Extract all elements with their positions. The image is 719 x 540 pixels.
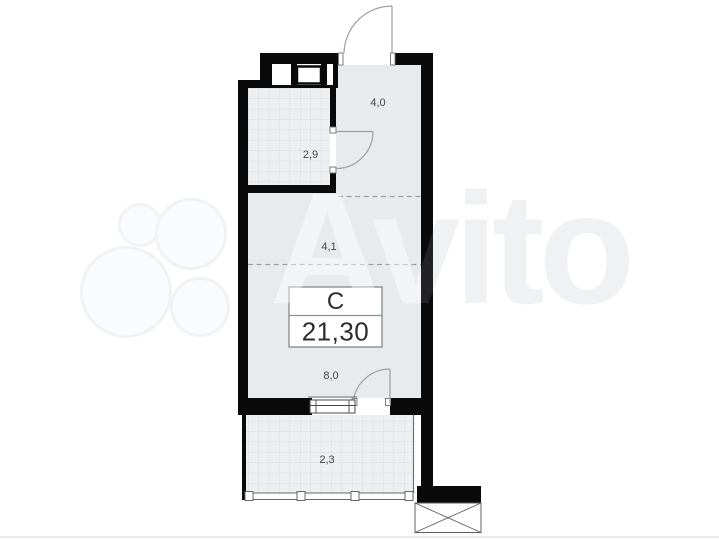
floorplan-image: Avito xyxy=(0,0,719,540)
vent-duct-symbol xyxy=(272,64,333,85)
window-symbol xyxy=(308,397,357,413)
apartment-type-label: С xyxy=(327,288,344,315)
shaft-crossed-box xyxy=(415,503,481,533)
wall-bottom-right-extension xyxy=(417,486,481,503)
page-separator-line xyxy=(0,536,719,538)
wall-bottom-left xyxy=(238,398,312,415)
apartment-info-box: С 21,30 xyxy=(289,287,382,347)
wall-right xyxy=(421,53,433,486)
wall-bathroom-right-lower xyxy=(330,173,336,193)
wall-balcony-left xyxy=(242,415,246,500)
area-label-balcony: 2,3 xyxy=(319,454,334,466)
wall-left xyxy=(238,80,248,415)
area-label-kitchen-zone: 4,1 xyxy=(321,241,336,253)
wall-bathroom-bottom xyxy=(248,185,336,193)
wall-bottom-right xyxy=(390,398,433,415)
wall-bathroom-right-upper xyxy=(330,88,336,127)
area-label-bathroom: 2,9 xyxy=(303,149,318,161)
area-label-entry-hall: 4,0 xyxy=(370,97,385,109)
apartment-total-area: 21,30 xyxy=(302,317,370,347)
floorplan-drawing: 4,0 2,9 4,1 8,0 2,3 С 21,30 xyxy=(0,0,719,540)
entrance-door xyxy=(344,6,392,53)
area-label-living-zone: 8,0 xyxy=(323,370,338,382)
bathroom-hatch-floor xyxy=(248,88,330,185)
